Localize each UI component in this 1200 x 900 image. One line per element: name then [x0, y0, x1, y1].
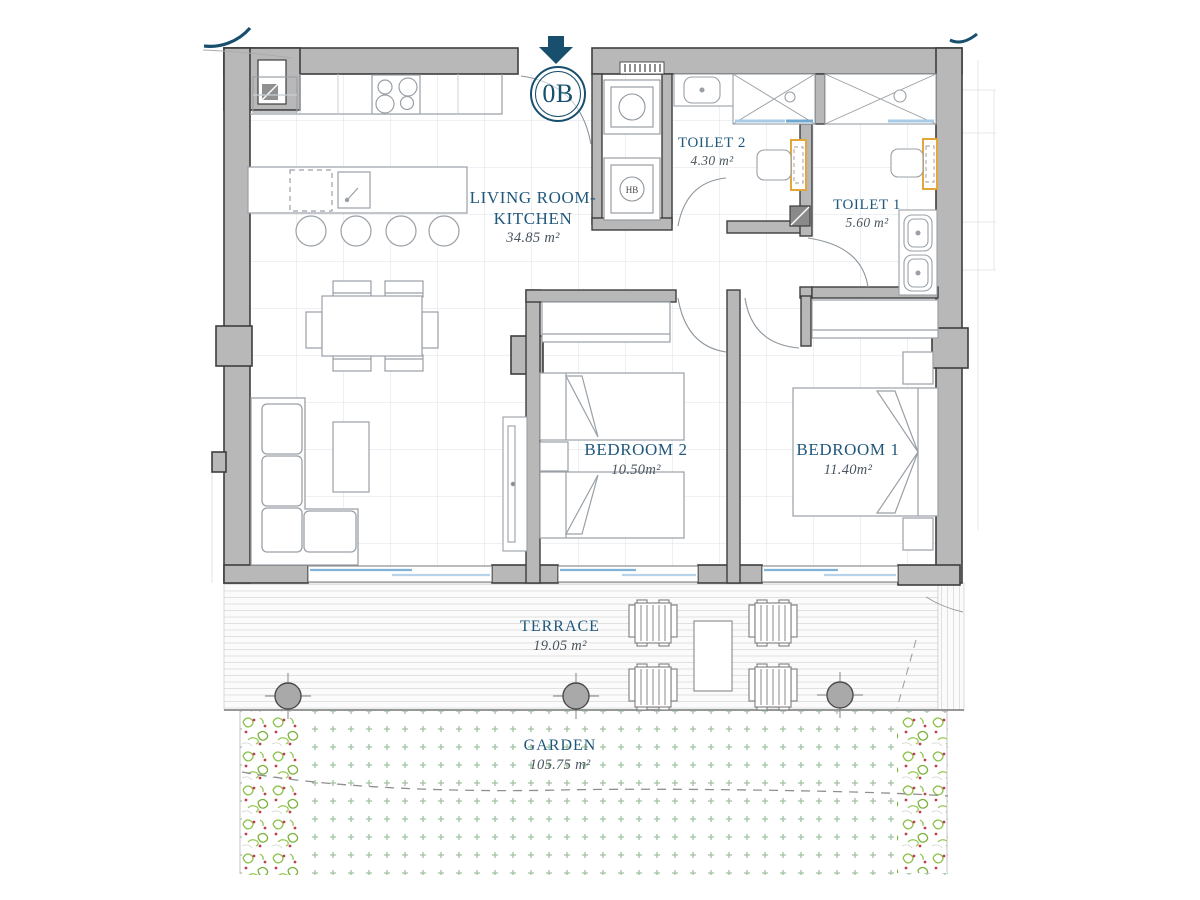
kitchen-island — [248, 167, 467, 213]
wardrobe — [812, 300, 938, 338]
room-area: 10.50m² — [584, 462, 687, 479]
unit-badge: 0B — [530, 66, 586, 122]
wardrobe — [542, 302, 670, 342]
label-garden: GARDEN 105.75 m² — [524, 736, 597, 774]
room-area: 19.05 m² — [520, 638, 600, 655]
room-name: LIVING ROOM-KITCHEN — [453, 188, 613, 229]
nightstand — [903, 518, 933, 550]
double-washbasin — [899, 210, 937, 295]
label-toilet2: TOILET 2 4.30 m² — [678, 134, 746, 169]
decor-arc-top-left — [204, 28, 250, 46]
tall-cabinet — [503, 417, 527, 551]
stove-icon — [372, 75, 420, 114]
terrace-table — [694, 621, 732, 691]
room-area: 105.75 m² — [524, 757, 597, 774]
patio-chair-icon — [749, 600, 797, 646]
vent-grille — [620, 62, 664, 74]
floor-plan-canvas: HB — [0, 0, 1200, 900]
label-terrace: TERRACE 19.05 m² — [520, 617, 600, 655]
unit-label: 0B — [542, 79, 573, 109]
water-heater-label: HB — [626, 185, 639, 195]
nightstand — [540, 442, 568, 471]
room-name: BEDROOM 1 — [796, 440, 899, 461]
patio-chair-icon — [629, 600, 677, 646]
room-area: 4.30 m² — [678, 153, 746, 169]
dining-table — [322, 296, 422, 356]
room-name: BEDROOM 2 — [584, 440, 687, 461]
shower-tray — [825, 74, 936, 124]
wall-hatch-block — [790, 206, 810, 226]
washbasin-icon — [684, 77, 720, 103]
decor-arc-top-right — [950, 34, 977, 42]
label-toilet1: TOILET 1 5.60 m² — [833, 196, 901, 231]
room-area: 34.85 m² — [453, 230, 613, 247]
wall-duct — [258, 60, 286, 104]
patio-chair-icon — [749, 664, 797, 710]
room-area: 5.60 m² — [833, 215, 901, 231]
garden-hedge-right — [897, 713, 947, 873]
label-living-room-kitchen: LIVING ROOM-KITCHEN 34.85 m² — [453, 188, 613, 247]
room-area: 11.40m² — [796, 462, 899, 479]
label-bedroom2: BEDROOM 2 10.50m² — [584, 440, 687, 479]
garden-hedge-left — [242, 711, 300, 875]
coffee-table — [333, 422, 369, 492]
label-bedroom1: BEDROOM 1 11.40m² — [796, 440, 899, 479]
kitchen-sink-icon — [338, 172, 370, 208]
bedroom2-furniture — [540, 302, 684, 538]
bedroom1-furniture — [793, 300, 938, 550]
shower-tray — [733, 74, 815, 124]
entrance-arrow-icon — [539, 36, 573, 64]
window-glazing — [308, 566, 898, 582]
single-bed — [540, 472, 684, 538]
room-name: TOILET 2 — [678, 134, 746, 152]
room-name: TERRACE — [520, 617, 600, 637]
room-name: TOILET 1 — [833, 196, 901, 214]
nightstand — [903, 352, 933, 384]
pilaster-left — [216, 326, 252, 366]
single-bed — [540, 373, 684, 440]
unit-badge-ring: 0B — [535, 71, 581, 117]
room-name: GARDEN — [524, 736, 597, 756]
washing-machine-icon — [604, 80, 660, 134]
patio-chair-icon — [629, 664, 677, 710]
